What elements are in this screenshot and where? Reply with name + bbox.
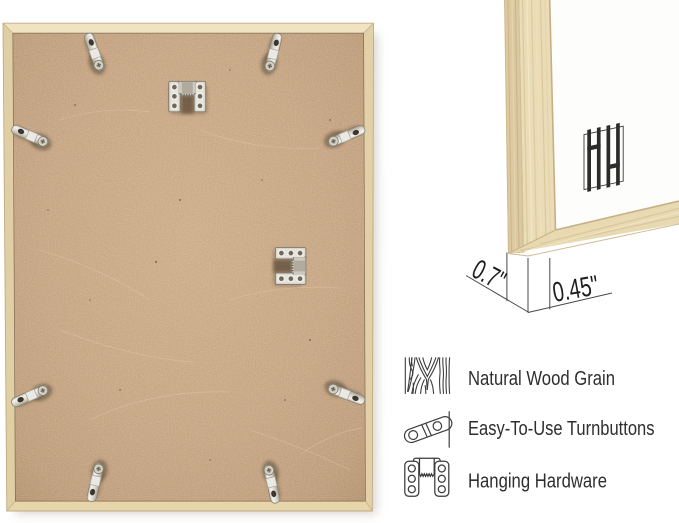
svg-text:Hanging Hardware: Hanging Hardware — [468, 470, 607, 493]
svg-text:Easy-To-Use Turnbuttons: Easy-To-Use Turnbuttons — [468, 417, 655, 440]
svg-text:Natural Wood Grain: Natural Wood Grain — [468, 367, 615, 390]
